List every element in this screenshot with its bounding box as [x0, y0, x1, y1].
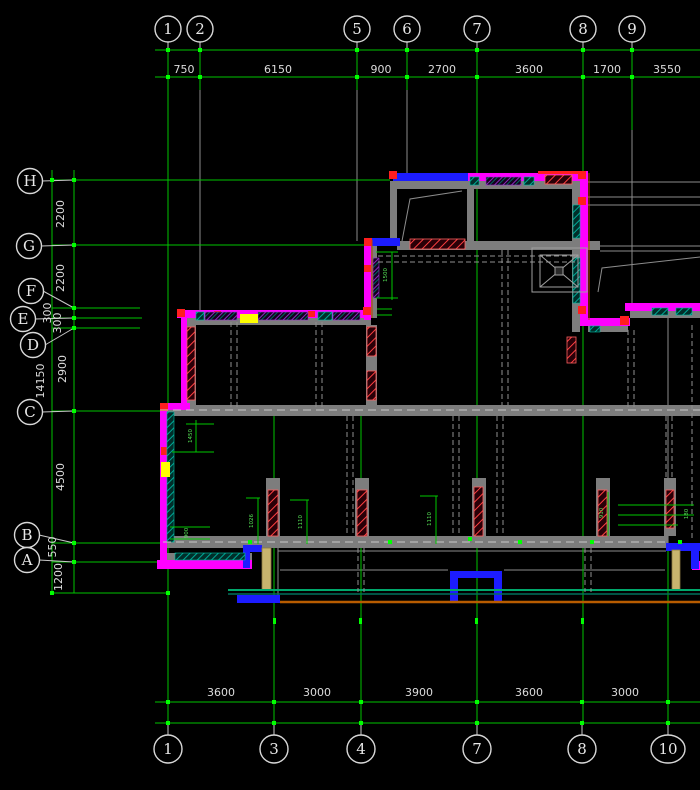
dim-small: 1026: [249, 514, 255, 528]
grid-bubble-label: 4: [356, 740, 366, 758]
dim-bottom: 3600: [515, 686, 543, 699]
dim-left: 550: [46, 537, 59, 558]
dim-top: 6150: [264, 63, 292, 76]
grid-bubble-label: 3: [269, 740, 279, 758]
grid-bubble-label: F: [26, 282, 36, 300]
dim-small: 1500: [383, 268, 389, 282]
dim-left: 2200: [54, 264, 67, 292]
dim-left: 300: [51, 313, 64, 334]
grid-bubble-label: 1: [163, 740, 173, 758]
dim-bottom: 3000: [303, 686, 331, 699]
walls-layer: [157, 171, 700, 603]
dim-small: 1450: [188, 429, 194, 443]
grid-bubble-label: H: [23, 172, 36, 190]
annotation-leader-upper: [402, 191, 462, 241]
dim-left: 2200: [54, 200, 67, 228]
grid-bubble-label: 8: [578, 20, 588, 38]
grid-bubble-label: 7: [472, 740, 482, 758]
dim-bottom: 3600: [207, 686, 235, 699]
dim-top: 3600: [515, 63, 543, 76]
annotation-leader-right: [598, 257, 700, 292]
dim-left: 4500: [54, 463, 67, 491]
grid-bubble-label: 7: [472, 20, 482, 38]
grid-bubble-label: 5: [352, 20, 362, 38]
grid-bubble-label: G: [23, 237, 35, 255]
dim-top: 900: [371, 63, 392, 76]
dim-small: 1110: [427, 512, 433, 526]
dim-bottom: 3000: [611, 686, 639, 699]
grid-bubble-label: C: [24, 403, 35, 421]
grid-bubble-label: 1: [163, 20, 173, 38]
grid-bubble-label: D: [27, 336, 39, 354]
dim-small: 180: [684, 508, 690, 519]
dim-left: 1200: [52, 563, 65, 591]
grid-bubble-label: 6: [402, 20, 412, 38]
dim-small: 910: [599, 507, 605, 518]
door-leaf-left: [262, 548, 271, 590]
grid-bubble-label: B: [21, 526, 32, 544]
dim-overall: 14150: [34, 364, 47, 399]
dim-top: 3550: [653, 63, 681, 76]
grid-bubble-label: 9: [627, 20, 637, 38]
dim-small: 1110: [298, 515, 304, 529]
door-leaf-right: [672, 550, 680, 590]
grid-bubble-label: 10: [658, 740, 677, 758]
dim-top: 2700: [428, 63, 456, 76]
dim-top: 1700: [593, 63, 621, 76]
highlight-beam-yellow: [240, 314, 258, 323]
grid-bubble-label: E: [18, 310, 29, 328]
dim-bottom: 3900: [405, 686, 433, 699]
floor-plan-canvas[interactable]: 12567891347810HGFEDCBA750615090027003600…: [0, 0, 700, 790]
annotation-layer: 12567891347810HGFEDCBA750615090027003600…: [11, 16, 691, 763]
dim-top: 750: [174, 63, 195, 76]
grid-bubble-label: A: [21, 551, 33, 569]
wall-left-exterior: [160, 403, 167, 569]
grid-bubble-label: 2: [195, 20, 205, 38]
dim-left: 2900: [56, 355, 69, 383]
dim-small: 900: [184, 527, 190, 538]
grid-bubble-label: 8: [577, 740, 587, 758]
